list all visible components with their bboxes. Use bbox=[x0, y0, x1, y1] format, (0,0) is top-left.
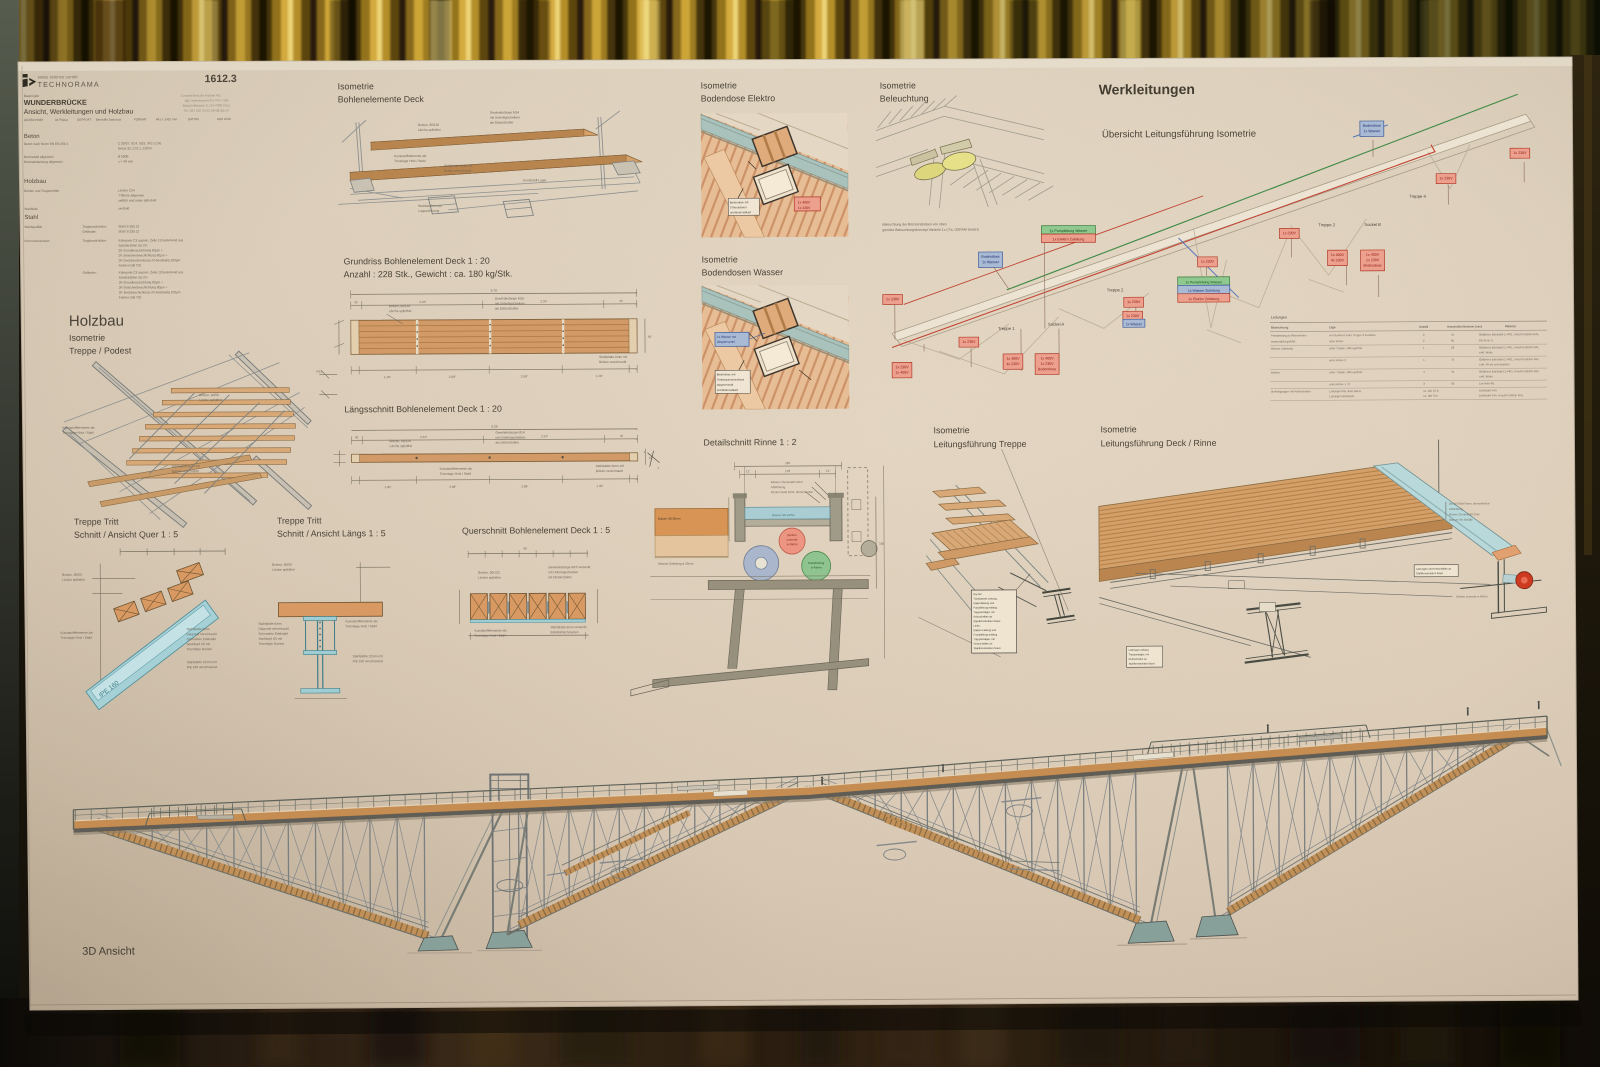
svg-text:7-fläche allgemein: 7-fläche allgemein bbox=[118, 193, 144, 197]
svg-text:Kunststoffelemente als: Kunststoffelemente als bbox=[440, 467, 473, 471]
svg-text:12: 12 bbox=[746, 469, 750, 473]
svg-text:April 2016: April 2016 bbox=[217, 117, 231, 121]
svg-text:178: 178 bbox=[785, 469, 790, 473]
svg-text:Senkkopf U5 mit: Senkkopf U5 mit bbox=[187, 642, 211, 646]
svg-text:1x 400V: 1x 400V bbox=[1366, 253, 1380, 257]
svg-text:ca. alle 3 m: ca. alle 3 m bbox=[1423, 394, 1438, 398]
svg-text:GEZEICHNET: GEZEICHNET bbox=[24, 118, 44, 122]
svg-text:1612.3: 1612.3 bbox=[205, 73, 237, 85]
svg-text:Bolzen, 90/50: Bolzen, 90/50 bbox=[199, 393, 219, 397]
svg-text:mit Unterlagscheiben: mit Unterlagscheiben bbox=[548, 570, 578, 574]
svg-text:seitlich und unten gehobelt: seitlich und unten gehobelt bbox=[118, 198, 156, 202]
svg-text:Bolzen, 90/120: Bolzen, 90/120 bbox=[389, 304, 411, 308]
svg-text:1x 230V: 1x 230V bbox=[1283, 231, 1297, 235]
svg-text:Stahlplatte 12mm mit: Stahlplatte 12mm mit bbox=[353, 654, 383, 658]
svg-text:Optipress Edelstahl 1.4401, An: Optipress Edelstahl 1.4401, Anschl Farbt… bbox=[1479, 345, 1539, 349]
svg-text:Ansicht, Werkleitungen und Hol: Ansicht, Werkleitungen und Holzbau bbox=[24, 108, 134, 116]
svg-text:Stahl S 235 J2: Stahl S 235 J2 bbox=[118, 229, 139, 233]
svg-text:Deckel Stahl 6mm, demontierbar: Deckel Stahl 6mm, demontierbar bbox=[1449, 501, 1490, 505]
svg-text:40: 40 bbox=[620, 434, 624, 438]
svg-text:1x Wasser: 1x Wasser bbox=[1126, 322, 1143, 326]
svg-text:Isometrie: Isometrie bbox=[933, 425, 969, 435]
svg-text:Bolzen 90/45mm: Bolzen 90/45mm bbox=[658, 517, 681, 521]
svg-text:90: 90 bbox=[523, 546, 527, 550]
svg-text:1x 230V: 1x 230V bbox=[1201, 260, 1215, 264]
svg-text:IPE 160 verschweisst: IPE 160 verschweisst bbox=[187, 665, 218, 669]
svg-text:Edelstahl V4A, Anschl Farbton: Edelstahl V4A, Anschl Farbton RAL bbox=[1479, 393, 1523, 397]
svg-text:Leitungen entlang: Leitungen entlang bbox=[1129, 649, 1150, 652]
svg-text:Rechts:: Rechts: bbox=[973, 592, 982, 596]
svg-text:Leitungsführung Deck / Rinne: Leitungsführung Deck / Rinne bbox=[1101, 438, 1217, 449]
svg-text:2.34²: 2.34² bbox=[420, 435, 427, 439]
svg-text:Grundriss Bohlenelement Deck: Grundriss Bohlenelement Deck 1 : 20 bbox=[344, 256, 490, 267]
svg-text:Optipress Edelstahl 1.4401, An: Optipress Edelstahl 1.4401, Anschl Farbt… bbox=[1479, 332, 1539, 336]
svg-text:5.25: 5.25 bbox=[491, 425, 497, 429]
svg-text:Übersicht Leitungsführung Isom: Übersicht Leitungsführung Isometrie bbox=[1102, 129, 1256, 141]
svg-text:Edelstahl V4A: Edelstahl V4A bbox=[1479, 388, 1497, 392]
svg-text:2K-Zwischenbeschichtung 80μm +: 2K-Zwischenbeschichtung 80μm + bbox=[119, 285, 168, 289]
svg-text:Isometrie: Isometrie bbox=[338, 81, 374, 91]
svg-text:Absperrventil: Absperrventil bbox=[717, 340, 735, 344]
svg-text:Bolzen, 90/120: Bolzen, 90/120 bbox=[390, 439, 412, 443]
svg-text:Lärche splintfrei: Lärche splintfrei bbox=[478, 576, 501, 580]
svg-text:GEPRÜFT: GEPRÜFT bbox=[77, 118, 92, 122]
svg-text:Isometrie: Isometrie bbox=[69, 333, 105, 343]
svg-text:Geländer:: Geländer: bbox=[83, 271, 97, 275]
svg-text:Stahlplatte 6mm: Stahlplatte 6mm bbox=[187, 627, 210, 631]
svg-text:1x 230V: 1x 230V bbox=[1439, 176, 1453, 180]
svg-text:44: 44 bbox=[1451, 370, 1455, 374]
svg-text:Rohrschellen an: Rohrschellen an bbox=[973, 614, 992, 618]
svg-text:unter Treppe, offen geführt: unter Treppe, offen geführt bbox=[1329, 346, 1362, 350]
svg-text:Lärche splintfrei: Lärche splintfrei bbox=[390, 444, 413, 448]
svg-text:Aussendurchmesser [mm]: Aussendurchmesser [mm] bbox=[1447, 324, 1482, 328]
svg-text:1x Wasser: 1x Wasser bbox=[982, 260, 1000, 264]
svg-text:66: 66 bbox=[1451, 382, 1455, 386]
svg-text:1x Wasser Zuleitung: 1x Wasser Zuleitung bbox=[1188, 289, 1220, 293]
svg-text:Kunststoffelemente als: Kunststoffelemente als bbox=[394, 154, 427, 158]
svg-text:3 Steckdosen: 3 Steckdosen bbox=[730, 205, 747, 209]
svg-text:Elektro-Leitung und: Elektro-Leitung und bbox=[974, 628, 997, 632]
svg-text:Längsschnitt Bohlenelement Dec: Längsschnitt Bohlenelement Deck 1 : 20 bbox=[344, 404, 502, 415]
svg-text:Links:: Links: bbox=[973, 624, 980, 628]
svg-text:Tel. 081 252 42 62 info@cbp.: Tel. 081 252 42 62 info@cbp.ch bbox=[184, 108, 229, 112]
svg-text:als Distanzhalter: als Distanzhalter bbox=[495, 306, 520, 310]
svg-text:28: 28 bbox=[1451, 346, 1455, 350]
svg-text:Lärche splintfrei: Lärche splintfrei bbox=[389, 309, 412, 313]
svg-text:Rohrschellen an: Rohrschellen an bbox=[974, 641, 993, 645]
svg-text:Gewindestange M16: Gewindestange M16 bbox=[495, 296, 524, 300]
svg-text:und Bodenablauf: und Bodenablauf bbox=[717, 388, 738, 392]
svg-text:Dmax 32, Cl 0.1, C3/C4: Dmax 32, Cl 0.1, C3/C4 bbox=[118, 146, 152, 150]
svg-text:Diagonal verschraubt: Diagonal verschraubt bbox=[258, 627, 288, 631]
svg-text:1x Pumpleitung Wasser: 1x Pumpleitung Wasser bbox=[1185, 280, 1223, 284]
svg-text:IPE 160 verschweisst: IPE 160 verschweisst bbox=[353, 659, 384, 663]
svg-text:40: 40 bbox=[619, 299, 623, 303]
svg-text:1x Elektro Zuleitung: 1x Elektro Zuleitung bbox=[1053, 237, 1085, 241]
svg-text:Detailschnitt Rinne 1 : 2: Detailschnitt Rinne 1 : 2 bbox=[704, 437, 797, 447]
svg-text:Pumpleitung: Pumpleitung bbox=[808, 561, 824, 565]
svg-text:Isometrie: Isometrie bbox=[701, 80, 737, 90]
svg-text:1x 230V: 1x 230V bbox=[1126, 314, 1140, 318]
svg-text:3D Ansicht: 3D Ansicht bbox=[82, 945, 135, 957]
svg-text:1x 230V: 1x 230V bbox=[798, 206, 811, 210]
svg-text:Stahlkonstruktion fixiert: Stahlkonstruktion fixiert bbox=[974, 646, 1001, 650]
svg-text:mit Unterlagscheiben: mit Unterlagscheiben bbox=[495, 301, 525, 305]
svg-text:als Distanzhalter: als Distanzhalter bbox=[496, 440, 521, 444]
svg-text:Bolzen verschraubt: Bolzen verschraubt bbox=[444, 169, 471, 173]
svg-text:Holzbau: Holzbau bbox=[69, 313, 124, 330]
svg-text:Befestigungen mit Rohrschellen: Befestigungen mit Rohrschellen bbox=[1271, 389, 1311, 393]
svg-text:2.08²: 2.08² bbox=[449, 485, 456, 489]
svg-text:2.08²: 2.08² bbox=[521, 374, 528, 378]
svg-text:Stahlplatte 6mm mit: Stahlplatte 6mm mit bbox=[444, 164, 472, 168]
svg-text:als Distanzhalter: als Distanzhalter bbox=[548, 575, 573, 579]
svg-text:Stahl S 355 J2: Stahl S 355 J2 bbox=[118, 224, 139, 228]
svg-text:Sandstrahlen Sa 2½: Sandstrahlen Sa 2½ bbox=[118, 243, 147, 247]
svg-text:Kunststoffelemente als: Kunststoffelemente als bbox=[62, 426, 95, 430]
svg-text:1.40²: 1.40² bbox=[596, 484, 603, 488]
svg-text:Benedikt Sartorius: Benedikt Sartorius bbox=[96, 118, 122, 122]
svg-text:Lärche splintfrei: Lärche splintfrei bbox=[418, 128, 441, 132]
svg-text:unter Rinne: unter Rinne bbox=[1329, 339, 1344, 343]
svg-text:2K-Deckbeschichtung UV-beständ: 2K-Deckbeschichtung UV-beständig 100μm bbox=[119, 290, 181, 294]
svg-text:Bohlenelemente Deck: Bohlenelemente Deck bbox=[338, 94, 425, 104]
svg-text:Treppe 1: Treppe 1 bbox=[998, 326, 1015, 331]
svg-text:Bolzen, 90/50: Bolzen, 90/50 bbox=[62, 573, 82, 577]
svg-text:Stahlplatte 6mm versenkt: Stahlplatte 6mm versenkt bbox=[550, 625, 586, 629]
svg-text:Treppenträger, mit: Treppenträger, mit bbox=[973, 610, 994, 614]
svg-text:Stahlteile:: Stahlteile: bbox=[24, 207, 38, 211]
svg-text:1x Pumpleitung Wasser: 1x Pumpleitung Wasser bbox=[1050, 229, 1089, 233]
svg-text:2K-Zwischenbeschichtung 80μm +: 2K-Zwischenbeschichtung 80μm + bbox=[119, 253, 168, 257]
svg-text:Kunststoffelemente als: Kunststoffelemente als bbox=[345, 619, 378, 623]
svg-text:Kategorie C3 aussen, Zeile 13: Kategorie C3 aussen, Zeile 13 bestehend … bbox=[119, 270, 184, 274]
svg-text:9/12: 9/12 bbox=[316, 369, 322, 373]
svg-text:2.08²: 2.08² bbox=[449, 375, 456, 379]
svg-text:2.34²: 2.34² bbox=[419, 300, 426, 304]
svg-text:Gewindestange M16 versenkt: Gewindestange M16 versenkt bbox=[548, 565, 590, 569]
svg-text:44: 44 bbox=[1451, 333, 1455, 337]
svg-text:Leitungen PE unter Rinne: Leitungen PE unter Rinne bbox=[1329, 389, 1361, 393]
svg-text:2.34²: 2.34² bbox=[540, 299, 547, 303]
svg-text:1.40²: 1.40² bbox=[596, 374, 603, 378]
svg-text:Trennlage Gummi: Trennlage Gummi bbox=[259, 642, 285, 646]
svg-text:Stahlkonstruktion fixiert: Stahlkonstruktion fixiert bbox=[973, 619, 1000, 623]
svg-text:Betonabdeckung allgemein: Betonabdeckung allgemein bbox=[24, 160, 63, 164]
svg-text:Bodendose mit: Bodendose mit bbox=[730, 200, 749, 204]
svg-text:FORMAT: FORMAT bbox=[134, 117, 147, 121]
svg-text:Tragkonstruktion:: Tragkonstruktion: bbox=[82, 239, 107, 243]
svg-text:Gewindestange M14: Gewindestange M14 bbox=[490, 110, 519, 114]
svg-text:Lärche C24: Lärche C24 bbox=[118, 188, 135, 192]
svg-text:1x 230V: 1x 230V bbox=[1127, 300, 1141, 304]
svg-text:Trennlage Holz / Stahl: Trennlage Holz / Stahl bbox=[345, 624, 377, 628]
svg-text:Betonstahl allgemein: Betonstahl allgemein bbox=[24, 155, 54, 159]
svg-text:Farbton DB 702: Farbton DB 702 bbox=[119, 295, 142, 299]
svg-text:841 x 1410 mm: 841 x 1410 mm bbox=[156, 117, 178, 121]
svg-text:40: 40 bbox=[354, 300, 358, 304]
svg-text:Werkleitungen: Werkleitungen bbox=[1099, 81, 1195, 98]
svg-text:Abdichtung: Abdichtung bbox=[771, 485, 786, 489]
svg-text:Senkkopf U5 mit: Senkkopf U5 mit bbox=[259, 637, 283, 641]
svg-text:Conzett Bronzini Partner AG: Conzett Bronzini Partner AG bbox=[181, 94, 222, 98]
svg-text:Bolzen verschraubt: Bolzen verschraubt bbox=[599, 360, 626, 364]
svg-text:wasserdicht geführt: wasserdicht geführt bbox=[1271, 339, 1295, 343]
svg-text:Stahlplatte 12mm mit: Stahlplatte 12mm mit bbox=[187, 660, 217, 664]
svg-text:Treppe 4: Treppe 4 bbox=[1409, 194, 1426, 199]
svg-text:Trinkwasseranschluss: Trinkwasseranschluss bbox=[717, 377, 745, 381]
svg-text:Treppenträger, mit: Treppenträger, mit bbox=[1129, 653, 1150, 656]
svg-text:Stahlplatte 6mm: Stahlplatte 6mm bbox=[258, 622, 281, 626]
svg-text:Sandstrahlen Sa 2½: Sandstrahlen Sa 2½ bbox=[119, 275, 148, 279]
svg-text:Treppenträger, mit: Treppenträger, mit bbox=[974, 637, 995, 641]
svg-text:Lärche splintfrei: Lärche splintfrei bbox=[62, 578, 85, 582]
svg-text:Stahlplatte 6mm mit: Stahlplatte 6mm mit bbox=[599, 355, 627, 359]
svg-text:Pumpleitung entlang: Pumpleitung entlang bbox=[973, 605, 997, 609]
svg-text:1x 230V: 1x 230V bbox=[962, 340, 976, 344]
svg-text:Stahllaschen zur: Stahllaschen zur bbox=[418, 204, 443, 208]
svg-text:Lage: Lage bbox=[1329, 325, 1336, 329]
svg-text:exkl. All als und Isolation: exkl. All als und Isolation bbox=[1479, 362, 1510, 366]
svg-text:Trennlage Gummi: Trennlage Gummi bbox=[187, 647, 213, 651]
svg-text:Wasser 5% Gefälle: Wasser 5% Gefälle bbox=[1449, 518, 1473, 522]
svg-text:Leerrohr: Leerrohr bbox=[787, 538, 798, 542]
svg-text:ø 40mm: ø 40mm bbox=[811, 565, 822, 569]
svg-text:ø 40mm: ø 40mm bbox=[787, 542, 798, 546]
svg-text:Absperrventil: Absperrventil bbox=[717, 383, 734, 387]
svg-text:Schrauben Edelstahl: Schrauben Edelstahl bbox=[259, 632, 289, 636]
svg-text:Leitungen: Leitungen bbox=[1271, 315, 1287, 319]
svg-text:Bolzen verschraubt: Bolzen verschraubt bbox=[172, 469, 199, 473]
svg-text:unter Rinne 2: unter Rinne 2 bbox=[1329, 358, 1346, 362]
svg-text:Treppe 2: Treppe 2 bbox=[1318, 222, 1335, 227]
svg-text:Trennlage Holz / Stahl: Trennlage Holz / Stahl bbox=[440, 472, 472, 476]
svg-text:mit Unterlagscheiben: mit Unterlagscheiben bbox=[490, 115, 520, 119]
svg-text:Geländer:: Geländer: bbox=[82, 230, 96, 234]
svg-text:Beton: Beton bbox=[24, 134, 40, 140]
svg-text:und Bodenablauf: und Bodenablauf bbox=[730, 210, 751, 214]
svg-text:Trennlage Holz / Stahl: Trennlage Holz / Stahl bbox=[394, 159, 426, 163]
svg-text:Wanne Chromstahl 2mm: Wanne Chromstahl 2mm bbox=[771, 480, 803, 484]
svg-text:Schrauben Edelstahl: Schrauben Edelstahl bbox=[187, 637, 217, 641]
svg-text:Wanne Chromstahl 2mm: Wanne Chromstahl 2mm bbox=[1449, 512, 1481, 516]
svg-text:Kunststoff-Lager: Kunststoff-Lager bbox=[523, 178, 547, 182]
svg-text:Stahlplatte 6mm mit: Stahlplatte 6mm mit bbox=[172, 464, 200, 468]
svg-text:Treppe 2: Treppe 2 bbox=[1107, 287, 1124, 292]
svg-text:Leerrohr PE: Leerrohr PE bbox=[1479, 381, 1494, 385]
svg-text:Kunststoffelemente als: Kunststoffelemente als bbox=[475, 629, 508, 633]
svg-text:Stahl: Stahl bbox=[24, 215, 38, 221]
svg-text:Isometrie: Isometrie bbox=[702, 254, 738, 264]
svg-text:12: 12 bbox=[826, 469, 830, 473]
svg-text:Wasser Zuleitung: Wasser Zuleitung bbox=[1271, 346, 1293, 350]
svg-text:Anzahl: Anzahl bbox=[1419, 325, 1429, 329]
svg-text:75: 75 bbox=[1451, 358, 1455, 362]
svg-text:Elektro: Elektro bbox=[788, 533, 797, 537]
svg-text:Lärche splintfrei: Lärche splintfrei bbox=[199, 398, 222, 402]
svg-text:Bodendose Elektro: Bodendose Elektro bbox=[701, 93, 775, 103]
svg-text:Lärche splintfrei: Lärche splintfrei bbox=[272, 568, 295, 572]
svg-text:Bodendose: Bodendose bbox=[1038, 367, 1056, 371]
svg-text:1x 230V: 1x 230V bbox=[1366, 258, 1380, 262]
svg-text:Sockel A: Sockel A bbox=[1048, 322, 1065, 327]
svg-text:Stahlkonstruktion fixiert: Stahlkonstruktion fixiert bbox=[1416, 571, 1443, 575]
svg-text:1.40²: 1.40² bbox=[384, 485, 391, 489]
svg-text:Elektro Leerrohr ø 40mm: Elektro Leerrohr ø 40mm bbox=[1456, 594, 1488, 598]
svg-text:dipl. Ingenieure ETH / FH / SI: dipl. Ingenieure ETH / FH / SIA bbox=[185, 98, 230, 102]
svg-text:Sockel B: Sockel B bbox=[1364, 222, 1381, 227]
svg-text:2K-Grundbeschichtung 80μm +: 2K-Grundbeschichtung 80μm + bbox=[119, 248, 163, 252]
svg-text:Trennlage Holz / Stahl: Trennlage Holz / Stahl bbox=[475, 634, 507, 638]
svg-text:Holzbau: Holzbau bbox=[24, 179, 46, 185]
svg-text:04 Plakat: 04 Plakat bbox=[55, 118, 68, 122]
svg-text:Bodendosen Wasser: Bodendosen Wasser bbox=[702, 267, 783, 277]
svg-text:Rohrschellen an: Rohrschellen an bbox=[1129, 658, 1148, 661]
svg-text:Trennlage Holz / Stahl: Trennlage Holz / Stahl bbox=[62, 431, 94, 435]
svg-text:260: 260 bbox=[785, 461, 790, 465]
svg-text:exkl. Wuks: exkl. Wuks bbox=[1479, 350, 1493, 354]
svg-text:Bolzen verschraubt: Bolzen verschraubt bbox=[596, 469, 623, 473]
svg-text:Anzahl : 228 Stk., Gewicht :: Anzahl : 228 Stk., Gewicht : ca. 180 kg/… bbox=[344, 269, 513, 280]
svg-text:1x Elektro Zuleitung: 1x Elektro Zuleitung bbox=[1188, 297, 1219, 301]
svg-text:Elektro: Elektro bbox=[1271, 370, 1280, 374]
svg-text:Material: Material bbox=[1505, 324, 1516, 328]
svg-text:Kategorie C3 aussen, Zeile 13: Kategorie C3 aussen, Zeile 13 bestehend … bbox=[118, 238, 183, 242]
svg-text:gemäss Beleuchtungskonzept Var: gemäss Beleuchtungskonzept Variante 1x (… bbox=[882, 228, 978, 233]
svg-text:WUNDERBRÜCKE: WUNDERBRÜCKE bbox=[24, 98, 87, 107]
svg-text:1x Wasser mit: 1x Wasser mit bbox=[717, 335, 736, 339]
svg-text:Stahlplatte 6mm mit: Stahlplatte 6mm mit bbox=[596, 464, 624, 468]
svg-text:Abdichtung: Abdichtung bbox=[1449, 507, 1463, 511]
svg-text:Pumpleitung entlang: Pumpleitung entlang bbox=[974, 632, 998, 636]
svg-text:unter Rinne 1 / 2: unter Rinne 1 / 2 bbox=[1329, 382, 1350, 386]
svg-text:1x 230V: 1x 230V bbox=[1040, 362, 1054, 366]
svg-text:Bolzen, 90/120: Bolzen, 90/120 bbox=[478, 571, 500, 575]
svg-text:5.78: 5.78 bbox=[491, 289, 497, 293]
svg-text:Treppe Tritt: Treppe Tritt bbox=[277, 516, 322, 526]
svg-text:1x 400V: 1x 400V bbox=[1040, 356, 1054, 360]
svg-text:1x Wasser: 1x Wasser bbox=[1363, 129, 1381, 133]
svg-text:Edelstahlschrauben: Edelstahlschrauben bbox=[551, 630, 579, 634]
svg-text:60: 60 bbox=[648, 335, 652, 339]
svg-text:exkl. Wuks: exkl. Wuks bbox=[1479, 374, 1493, 378]
svg-text:Schnitt / Ansicht Quer 1 : 5: Schnitt / Ansicht Quer 1 : 5 bbox=[74, 529, 178, 540]
svg-text:Bolzen, 90/50: Bolzen, 90/50 bbox=[272, 563, 292, 567]
svg-text:Kunststoffelemente als: Kunststoffelemente als bbox=[61, 631, 94, 635]
svg-text:1x 230V: 1x 230V bbox=[1513, 151, 1527, 155]
svg-text:Bohlen und Treppentritte: Bohlen und Treppentritte bbox=[24, 189, 59, 193]
svg-text:unter Treppe, offen geführt: unter Treppe, offen geführt bbox=[1329, 370, 1362, 374]
svg-text:60: 60 bbox=[1451, 339, 1455, 343]
svg-text:Trinkwasser-Leitung,: Trinkwasser-Leitung, bbox=[973, 596, 997, 600]
svg-text:Korrosionsschutz:: Korrosionsschutz: bbox=[24, 239, 49, 243]
svg-text:swiss science center: swiss science center bbox=[38, 74, 79, 79]
svg-text:40: 40 bbox=[355, 435, 359, 439]
svg-text:mit Unterlagscheiben: mit Unterlagscheiben bbox=[496, 435, 526, 439]
svg-text:Leitungen Edelstahl: Leitungen Edelstahl bbox=[1329, 394, 1354, 398]
svg-text:Stahlqualität: Stahlqualität bbox=[24, 225, 42, 229]
svg-text:als Distanzhalter: als Distanzhalter bbox=[490, 120, 515, 124]
svg-text:Beton nach Norm SN EN 206-1: Beton nach Norm SN EN 206-1 bbox=[24, 142, 69, 146]
svg-text:Leitungsführung Treppe: Leitungsführung Treppe bbox=[934, 439, 1027, 449]
svg-text:Querschnitt Bohlenelement Deck: Querschnitt Bohlenelement Deck 1 : 5 bbox=[462, 525, 610, 536]
svg-text:von Sockel A unter Treppe 2 zu: von Sockel A unter Treppe 2 zu Rinne bbox=[1329, 333, 1376, 337]
svg-text:Bodendose mit: Bodendose mit bbox=[717, 372, 736, 376]
svg-text:Beleuchtung: Beleuchtung bbox=[880, 93, 929, 103]
svg-text:4x 230V: 4x 230V bbox=[1006, 362, 1020, 366]
svg-text:2.34²: 2.34² bbox=[541, 434, 548, 438]
svg-text:B 500B: B 500B bbox=[118, 155, 128, 159]
svg-text:Bodendose: Bodendose bbox=[981, 255, 999, 259]
svg-text:Bolzen, 90/120: Bolzen, 90/120 bbox=[418, 123, 440, 127]
svg-text:Optipress Edelstahl 1.4401, An: Optipress Edelstahl 1.4401, Anschl Farbt… bbox=[1479, 369, 1539, 373]
svg-text:1x 400V: 1x 400V bbox=[1006, 357, 1020, 361]
svg-text:2K-Deckbeschichtung UV-beständ: 2K-Deckbeschichtung UV-beständig 100μm bbox=[119, 258, 181, 262]
svg-text:c = 40 mm: c = 40 mm bbox=[118, 159, 133, 163]
svg-text:Bezeichnung: Bezeichnung bbox=[1271, 325, 1289, 329]
svg-text:1x 400V: 1x 400V bbox=[1331, 253, 1345, 257]
svg-text:TECHNORAMA: TECHNORAMA bbox=[38, 80, 100, 89]
svg-text:Lagesicherung: Lagesicherung bbox=[418, 209, 439, 213]
svg-text:PE Serie S: PE Serie S bbox=[1479, 338, 1493, 342]
svg-text:2.08²: 2.08² bbox=[521, 484, 528, 488]
svg-text:Wasser-Zuleitung ø 25mm: Wasser-Zuleitung ø 25mm bbox=[658, 562, 694, 566]
svg-text:Deckel Stahl 6mm, demontierbar: Deckel Stahl 6mm, demontierbar bbox=[771, 490, 813, 494]
svg-text:C 30/37, XC4, XD3, XF2 ( CH): C 30/37, XC4, XD3, XF2 ( CH) bbox=[118, 141, 161, 145]
svg-text:DATUM: DATUM bbox=[188, 117, 199, 121]
svg-text:4x 230V: 4x 230V bbox=[1331, 258, 1345, 262]
svg-text:Pumpleitung zu Wasserrinne: Pumpleitung zu Wasserrinne bbox=[1271, 333, 1307, 337]
svg-text:Treppe Tritt: Treppe Tritt bbox=[74, 517, 119, 527]
svg-text:Farbton DB 702: Farbton DB 702 bbox=[119, 263, 142, 267]
svg-text:Wasser 50l 5cl/5m: Wasser 50l 5cl/5m bbox=[772, 513, 796, 517]
svg-text:Schnitt / Ansicht Längs 1 : 5: Schnitt / Ansicht Längs 1 : 5 bbox=[277, 528, 386, 539]
svg-text:1x 400V: 1x 400V bbox=[895, 371, 909, 375]
svg-text:Treppe / Podest: Treppe / Podest bbox=[69, 345, 132, 355]
svg-text:1x 230V: 1x 230V bbox=[895, 365, 909, 369]
svg-text:Elektroleitung und: Elektroleitung und bbox=[973, 601, 994, 605]
svg-text:Trennlage Holz / Stahl: Trennlage Holz / Stahl bbox=[61, 636, 93, 640]
svg-text:verzinkt: verzinkt bbox=[118, 207, 129, 211]
svg-text:Bahnhofstrasse 3, CH-7000 Chur: Bahnhofstrasse 3, CH-7000 Chur bbox=[183, 103, 231, 107]
svg-text:ca. alle 10 m: ca. alle 10 m bbox=[1423, 389, 1440, 393]
svg-text:Bodendose: Bodendose bbox=[1363, 124, 1381, 128]
svg-text:Diagonal verschraubt: Diagonal verschraubt bbox=[187, 632, 217, 636]
svg-text:1x 230V: 1x 230V bbox=[886, 297, 900, 301]
svg-text:Isometrie: Isometrie bbox=[1100, 424, 1136, 434]
svg-text:Isometrie: Isometrie bbox=[880, 80, 916, 90]
svg-text:1.40²: 1.40² bbox=[384, 375, 391, 379]
svg-text:160: 160 bbox=[879, 542, 884, 546]
svg-text:Gewindestange M14: Gewindestange M14 bbox=[495, 430, 524, 434]
svg-text:Optipress Edelstahl 1.4401, An: Optipress Edelstahl 1.4401, Anschl Farbt… bbox=[1479, 357, 1539, 361]
svg-text:Tragkonstruktion:: Tragkonstruktion: bbox=[82, 225, 107, 229]
svg-text:1x 400V: 1x 400V bbox=[798, 200, 811, 204]
svg-text:Stahlkonstruktion fixiert: Stahlkonstruktion fixiert bbox=[1129, 662, 1155, 665]
svg-text:Beleuchtung der Brückenstreben: Beleuchtung der Brückenstreben von oben bbox=[882, 222, 946, 226]
svg-text:Bodendose: Bodendose bbox=[1363, 264, 1381, 268]
svg-text:2K-Grundbeschichtung 80μm +: 2K-Grundbeschichtung 80μm + bbox=[119, 280, 163, 284]
svg-text:Leitungen mit Rohrschellen an: Leitungen mit Rohrschellen an bbox=[1416, 567, 1452, 571]
